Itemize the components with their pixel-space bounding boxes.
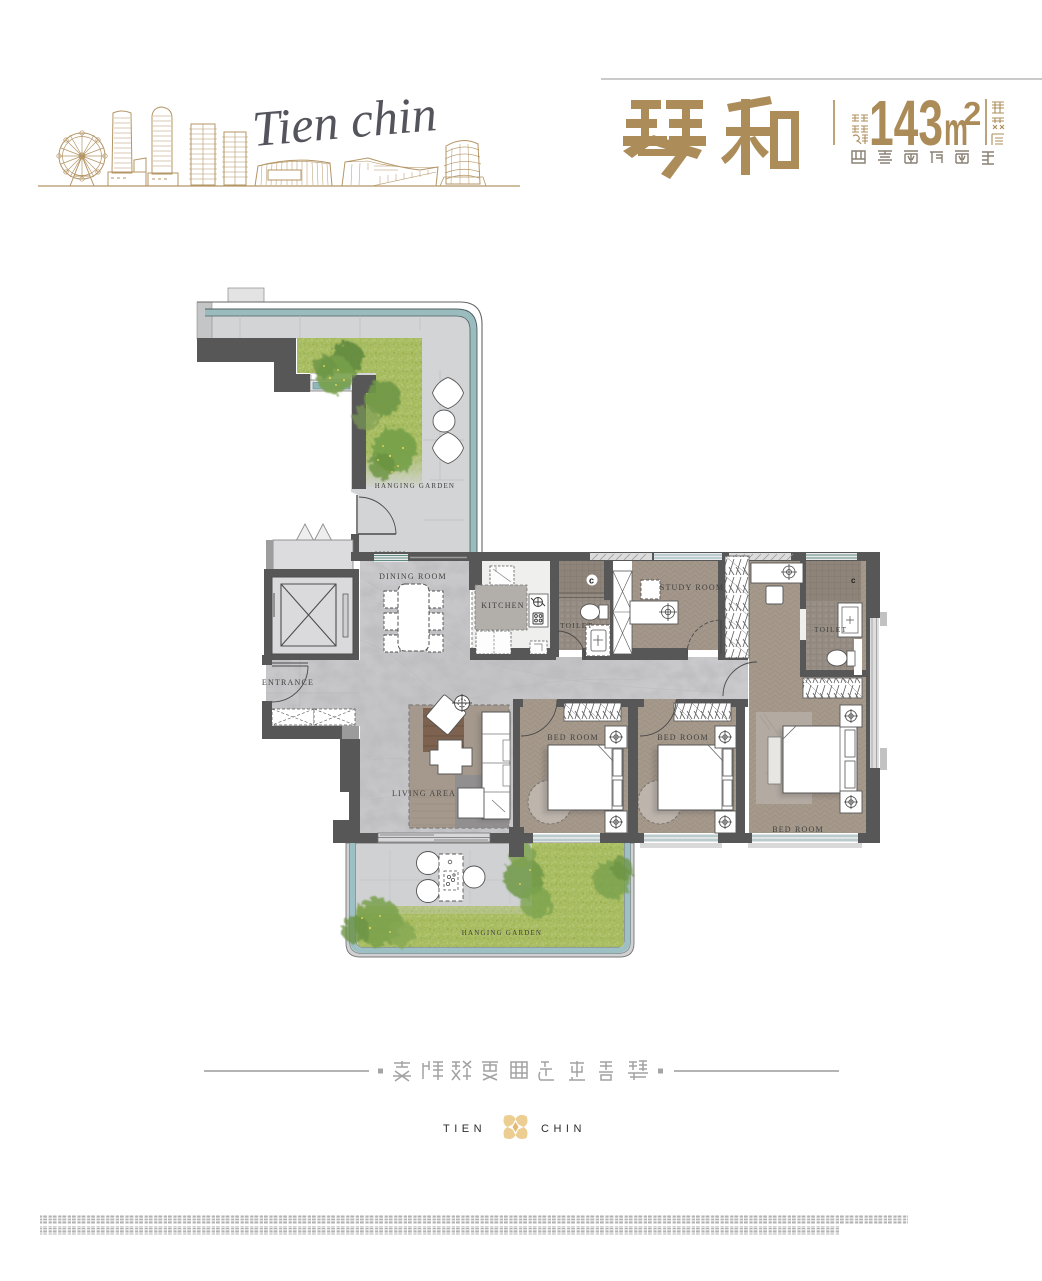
svg-text:ENTRANCE: ENTRANCE xyxy=(262,678,314,687)
svg-text:2: 2 xyxy=(963,95,981,132)
svg-text:CHIN: CHIN xyxy=(541,1123,586,1135)
svg-text:c: c xyxy=(589,576,594,586)
svg-text:HANGING GARDEN: HANGING GARDEN xyxy=(462,929,542,937)
svg-text:STUDY ROOM: STUDY ROOM xyxy=(660,583,724,592)
svg-text:TIEN: TIEN xyxy=(443,1123,486,1135)
svg-text:TOILET: TOILET xyxy=(560,621,593,630)
svg-text:BED ROOM: BED ROOM xyxy=(547,733,599,742)
svg-text:DINING ROOM: DINING ROOM xyxy=(379,572,447,581)
svg-text:LIVING AREA: LIVING AREA xyxy=(392,789,456,798)
svg-text:BED ROOM: BED ROOM xyxy=(772,825,824,834)
svg-text:BED ROOM: BED ROOM xyxy=(657,733,709,742)
svg-text:Tien chin: Tien chin xyxy=(250,85,439,157)
svg-text:TOILET: TOILET xyxy=(814,625,847,634)
svg-text:HANGING GARDEN: HANGING GARDEN xyxy=(375,482,455,490)
svg-text:c: c xyxy=(851,576,856,585)
svg-text:KITCHEN: KITCHEN xyxy=(481,601,525,610)
svg-text:143: 143 xyxy=(869,87,943,159)
